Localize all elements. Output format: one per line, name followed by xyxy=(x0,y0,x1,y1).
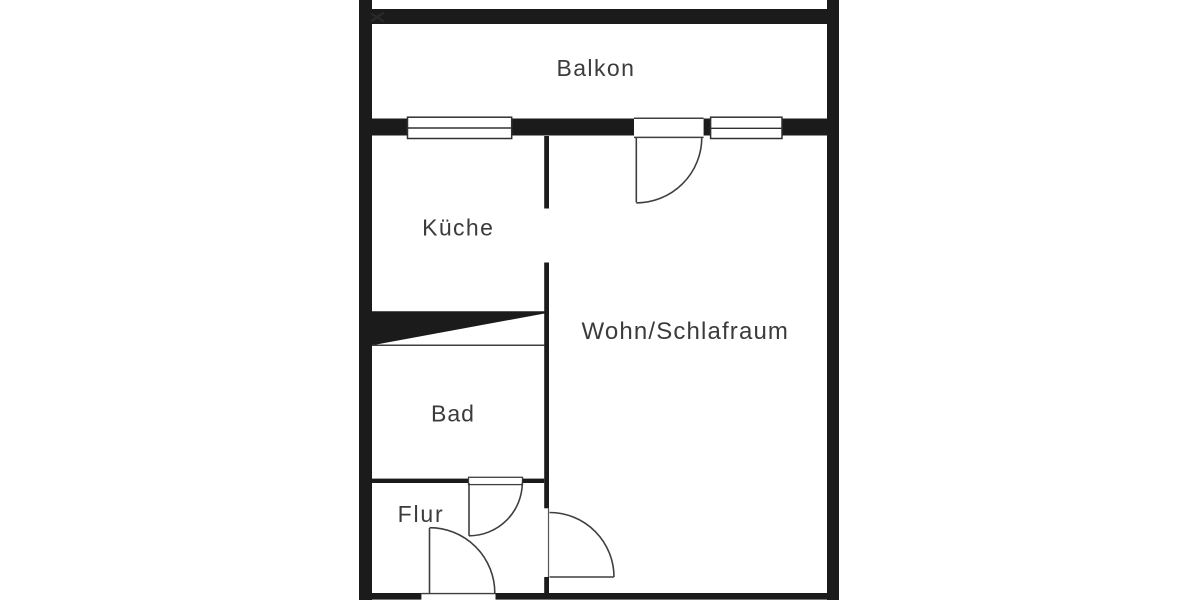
svg-text:Flur: Flur xyxy=(398,501,445,527)
svg-text:Bad: Bad xyxy=(431,401,475,427)
svg-text:Balkon: Balkon xyxy=(556,55,635,81)
svg-text:Wohn/Schlafraum: Wohn/Schlafraum xyxy=(582,318,790,345)
svg-text:Küche: Küche xyxy=(422,214,494,240)
